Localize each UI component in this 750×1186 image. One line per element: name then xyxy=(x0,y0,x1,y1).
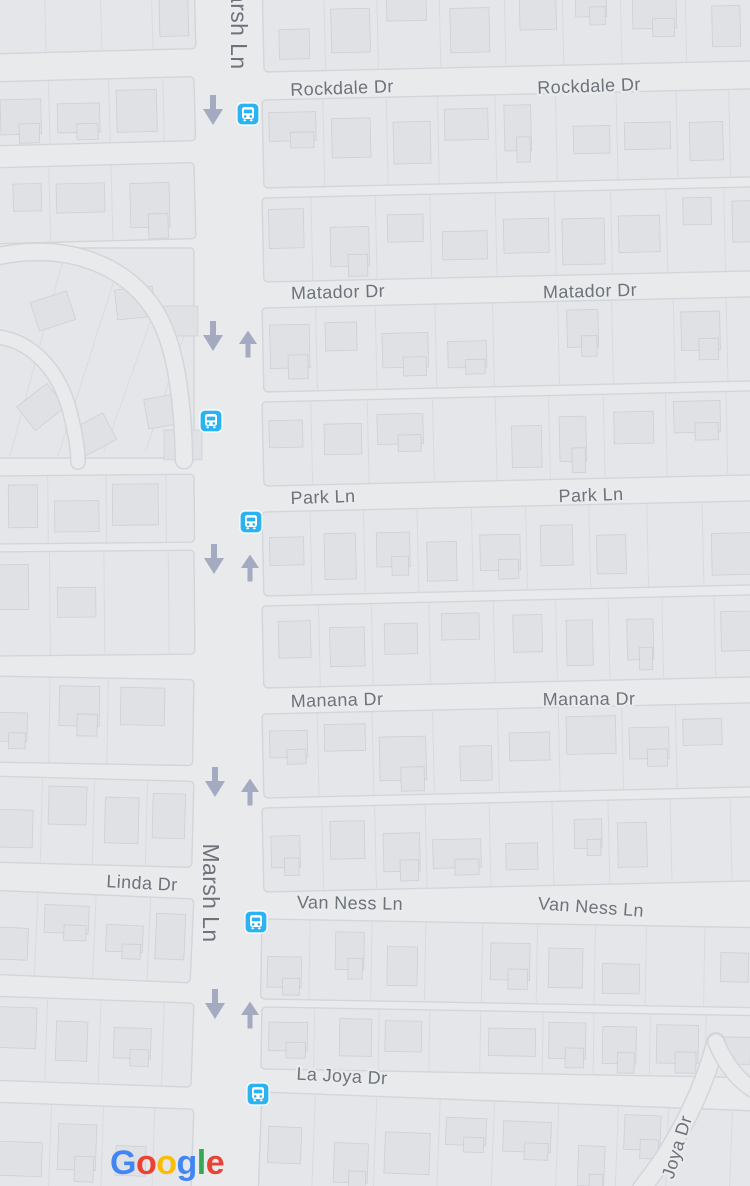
bus-stop-icon[interactable] xyxy=(247,1083,269,1105)
street-label-manana-dr-left: Manana Dr xyxy=(290,689,383,711)
bus-stop-icon[interactable] xyxy=(237,103,259,125)
street-label-marsh-ln-top: Marsh Ln xyxy=(226,0,252,70)
street-label-marsh-ln: Marsh Ln xyxy=(198,843,224,942)
street-label-rockdale-dr-left: Rockdale Dr xyxy=(290,76,394,100)
street-label-manana-dr-right: Manana Dr xyxy=(543,689,636,710)
map-viewport[interactable]: Marsh LnRockdale DrRockdale DrMatador Dr… xyxy=(0,0,750,1186)
street-label-matador-dr-right: Matador Dr xyxy=(543,280,638,302)
bus-stop-icon[interactable] xyxy=(200,410,222,432)
google-logo[interactable]: Google xyxy=(110,1144,224,1182)
map-canvas[interactable]: Marsh LnRockdale DrRockdale DrMatador Dr… xyxy=(0,0,750,1186)
bus-stop-icon[interactable] xyxy=(240,511,262,533)
street-label-park-ln-left: Park Ln xyxy=(290,486,356,508)
street-label-park-ln-right: Park Ln xyxy=(558,484,624,506)
street-label-van-ness-ln-left: Van Ness Ln xyxy=(297,892,403,914)
street-label-linda-dr: Linda Dr xyxy=(106,871,178,895)
street-label-matador-dr-left: Matador Dr xyxy=(291,281,386,303)
bus-stop-icon[interactable] xyxy=(245,911,267,933)
street-label-rockdale-dr-right: Rockdale Dr xyxy=(537,74,641,98)
